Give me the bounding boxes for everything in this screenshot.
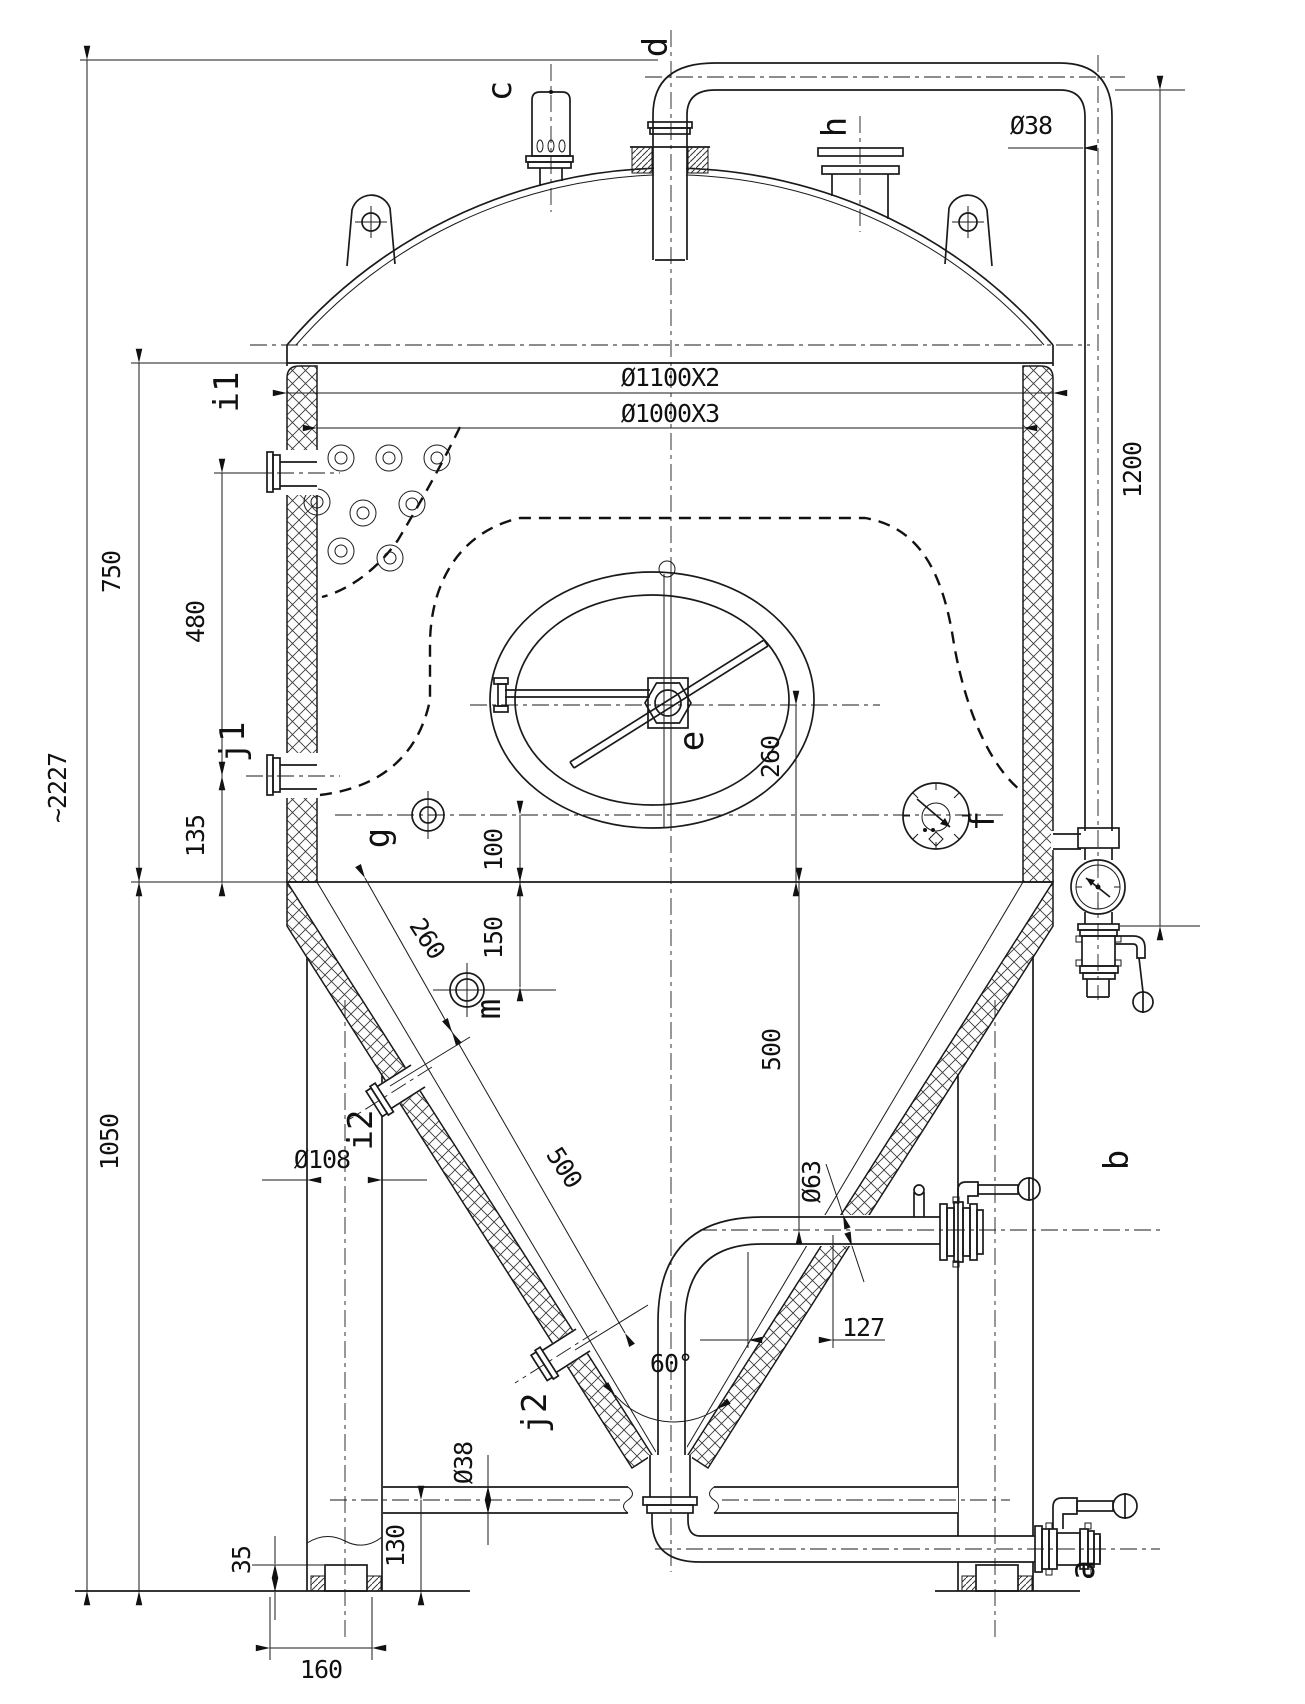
port-i1: [266, 450, 318, 495]
dim-foot-height: 35: [227, 1546, 256, 1574]
manway: [490, 561, 814, 828]
breather-valve-c: [526, 90, 573, 186]
dim-top-pipe-dia: Ø38: [1010, 111, 1052, 140]
dimple-jacket-spots: [304, 445, 450, 571]
port-label-f: f: [963, 811, 1003, 831]
dim-bottom-pipe-elev: 130: [381, 1525, 410, 1567]
port-label-j2: j2: [515, 1393, 555, 1434]
dim-shell-height: 750: [97, 551, 126, 593]
cone-apex-outlet: [643, 1455, 700, 1562]
dim-outlet-dia: Ø63: [797, 1161, 826, 1203]
port-label-d: d: [636, 37, 676, 57]
dim-cone-slope-upper: 260: [403, 913, 450, 964]
dim-shell-od: Ø1100X2: [621, 363, 719, 392]
port-label-j1: j1: [213, 722, 253, 763]
dim-g-offset: 100: [479, 829, 508, 871]
dimension-texts: ~2227 750 1050 480 135 Ø1100X2 Ø1000X3 2…: [43, 111, 1147, 1684]
port-label-i1: i1: [207, 372, 247, 413]
dim-lower-height: 1050: [95, 1114, 124, 1170]
port-label-e: e: [672, 731, 712, 751]
fermenter-drawing: ~2227 750 1050 480 135 Ø1100X2 Ø1000X3 2…: [0, 0, 1305, 1704]
insulation-right: [1023, 366, 1053, 882]
port-label-c: c: [480, 81, 520, 101]
port-j1: [266, 753, 318, 798]
port-label-i2: i2: [341, 1110, 381, 1151]
drawing-page: ~2227 750 1050 480 135 Ø1100X2 Ø1000X3 2…: [0, 0, 1305, 1704]
dim-pipe-drop: 1200: [1118, 442, 1147, 498]
dim-cone-angle: 60°: [650, 1349, 692, 1378]
dim-bottom-pipe-dia: Ø38: [449, 1442, 478, 1484]
insulation-left: [287, 366, 317, 882]
port-label-b: b: [1097, 1150, 1137, 1170]
dim-shell-id: Ø1000X3: [621, 399, 719, 428]
port-label-a: a: [1063, 1560, 1103, 1580]
dim-cone-slope-lower: 500: [540, 1142, 587, 1193]
dim-foot-width: 160: [300, 1655, 342, 1684]
dim-manway-offset: 260: [756, 736, 785, 778]
dim-j1-offset: 135: [181, 815, 210, 857]
port-label-g: g: [358, 828, 398, 848]
cooling-jacket-outline: [320, 427, 1020, 795]
dim-outlet-offset: 127: [842, 1313, 884, 1342]
butterfly-valve-right: [1076, 912, 1153, 1013]
port-h: [818, 148, 903, 219]
dim-port-spacing: 480: [181, 601, 210, 643]
port-label-h: h: [815, 117, 855, 137]
dim-overall-height: ~2227: [43, 753, 72, 823]
thermometer-f: [903, 783, 969, 849]
dim-cone-offset: 150: [479, 917, 508, 959]
dim-outlet-height: 500: [757, 1029, 786, 1071]
port-label-m: m: [469, 999, 509, 1019]
cip-entry-stub: [1051, 831, 1081, 850]
